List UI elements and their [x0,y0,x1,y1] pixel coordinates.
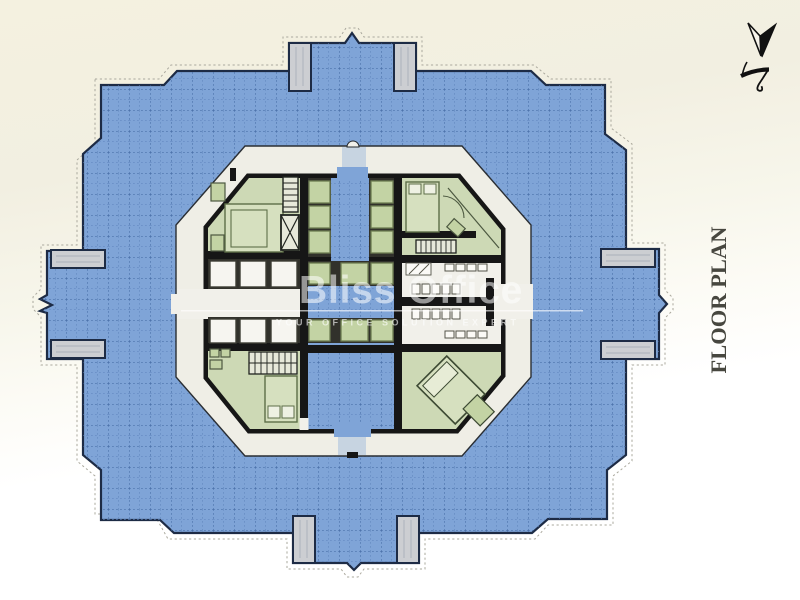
svg-text:YOUR OFFICE SOLUTION EXPERT: YOUR OFFICE SOLUTION EXPERT [276,318,520,328]
svg-text:FLOOR PLAN: FLOOR PLAN [706,227,731,374]
svg-text:Bliss Office: Bliss Office [299,269,523,312]
